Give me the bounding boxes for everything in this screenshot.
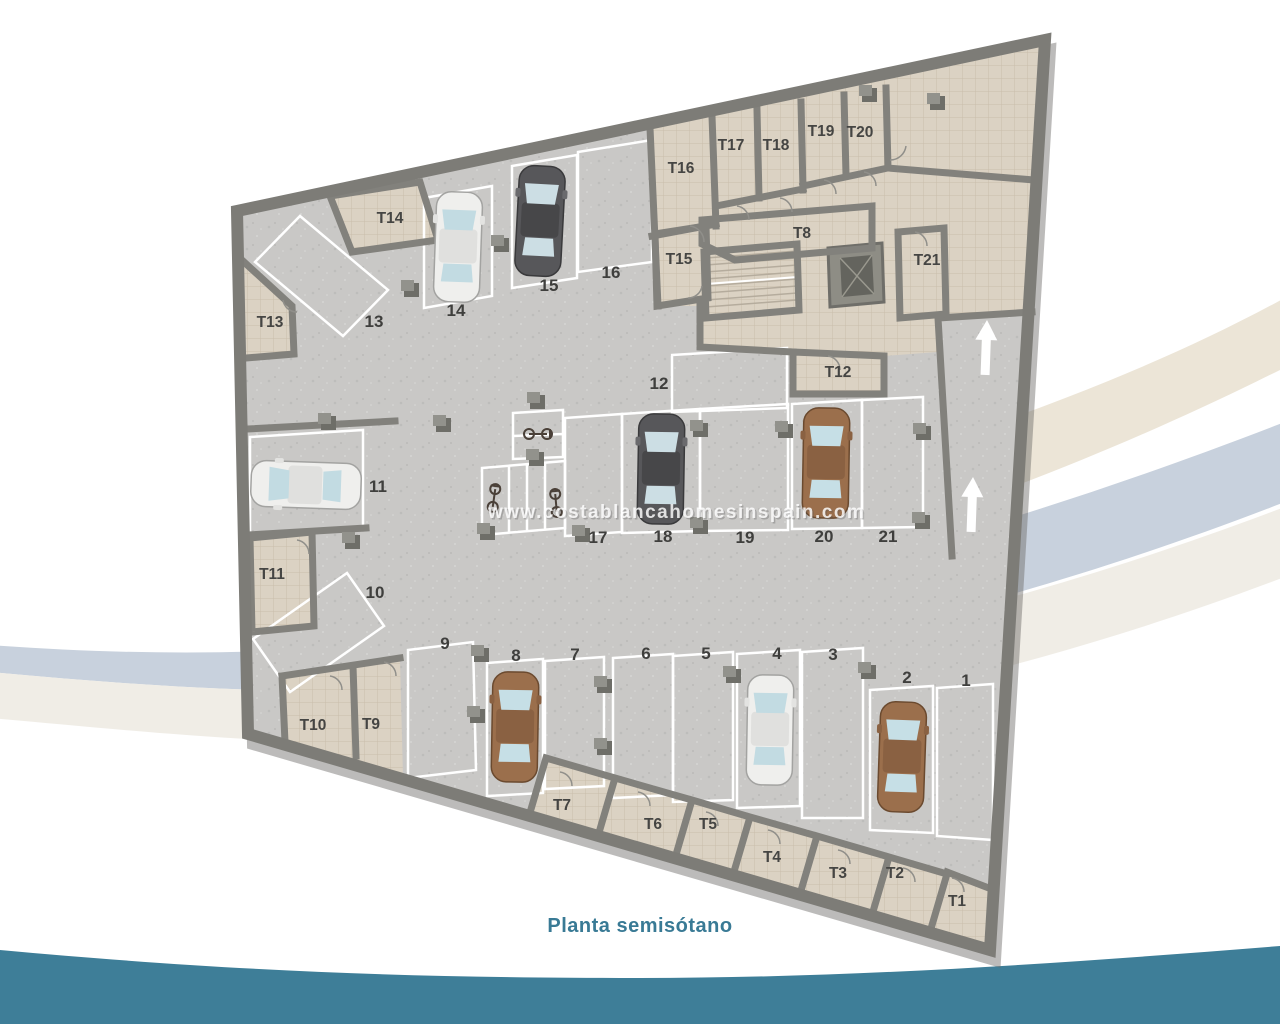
- parking-spot-label-18: 18: [654, 527, 673, 546]
- storage-room-label-T9: T9: [362, 716, 380, 733]
- car-spot-8: [488, 672, 542, 783]
- parking-spot-label-10: 10: [366, 583, 385, 602]
- parking-spot-label-5: 5: [701, 644, 710, 663]
- storage-room-label-T1: T1: [948, 893, 966, 910]
- storage-room-label-T3: T3: [829, 865, 847, 882]
- storage-room-label-T12: T12: [825, 364, 852, 381]
- storage-room-label-T4: T4: [763, 849, 781, 866]
- storage-room-label-T2: T2: [886, 865, 904, 882]
- parking-spot-label-1: 1: [961, 671, 970, 690]
- storage-room-label-T14: T14: [377, 210, 404, 227]
- parking-spot-label-7: 7: [570, 645, 579, 664]
- storage-room-label-T17: T17: [718, 137, 745, 154]
- parking-spot-label-9: 9: [440, 634, 449, 653]
- parking-spot-label-19: 19: [736, 528, 755, 547]
- parking-spot-label-13: 13: [365, 312, 384, 331]
- car-spot-14: [430, 191, 486, 303]
- storage-room-label-T7: T7: [553, 797, 571, 814]
- storage-room-label-T8: T8: [793, 225, 811, 242]
- car-spot-4: [743, 675, 797, 786]
- parking-spot-label-17: 17: [589, 528, 608, 547]
- parking-spot-label-14: 14: [447, 301, 466, 320]
- car-spot-15: [511, 165, 569, 278]
- parking-spot-label-16: 16: [602, 263, 621, 282]
- parking-spot-label-15: 15: [540, 276, 559, 295]
- parking-spot-label-8: 8: [511, 646, 520, 665]
- storage-room-label-T6: T6: [644, 816, 662, 833]
- storage-room-label-T10: T10: [300, 717, 327, 734]
- storage-room-label-T13: T13: [257, 314, 284, 331]
- parking-spot-label-21: 21: [879, 527, 898, 546]
- parking-spot-label-2: 2: [902, 668, 911, 687]
- car-spot-11: [250, 457, 362, 513]
- watermark: www.costablancahomesinspain.com: [487, 502, 865, 523]
- wave-teal-bottom: [0, 946, 1280, 1024]
- storage-room-label-T15: T15: [666, 251, 693, 268]
- storage-room-label-T18: T18: [763, 137, 790, 154]
- parking-spot-label-4: 4: [772, 644, 782, 663]
- page: 1 2 3 4 5 6 7 8 9 10 11 12 13 14 15 16 1…: [0, 0, 1280, 1024]
- page-title: Planta semisótano: [547, 915, 732, 937]
- storage-room-label-T19: T19: [808, 123, 835, 140]
- parking-spot-label-11: 11: [369, 477, 387, 496]
- car-spot-2: [874, 701, 930, 813]
- parking-spot-label-12: 12: [650, 374, 669, 393]
- storage-room-label-T16: T16: [668, 160, 695, 177]
- storage-room-label-T21: T21: [914, 252, 941, 269]
- storage-room-label-T20: T20: [847, 124, 874, 141]
- parking-spot-label-20: 20: [815, 527, 834, 546]
- storage-room-label-T11: T11: [259, 566, 285, 583]
- parking-spot-label-3: 3: [828, 645, 837, 664]
- floor-plan: 1 2 3 4 5 6 7 8 9 10 11 12 13 14 15 16 1…: [0, 0, 1280, 1024]
- storage-room-label-T5: T5: [699, 816, 717, 833]
- parking-spot-label-6: 6: [641, 644, 650, 663]
